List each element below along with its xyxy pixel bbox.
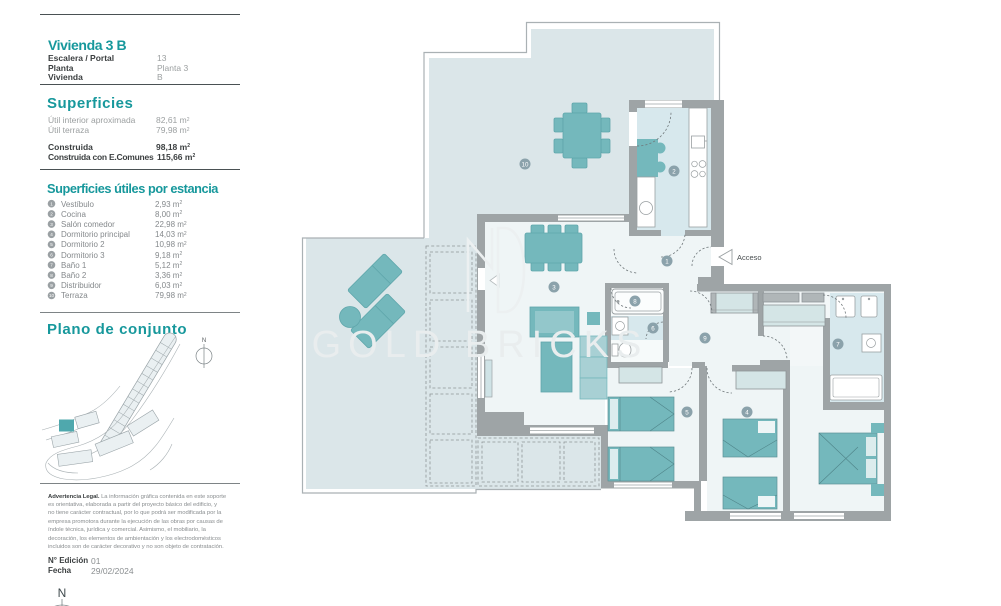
- svg-text:Acceso: Acceso: [737, 253, 762, 262]
- svg-text:N: N: [58, 586, 67, 600]
- svg-text:10: 10: [49, 293, 55, 298]
- svg-text:3: 3: [50, 222, 53, 227]
- svg-text:1: 1: [665, 258, 669, 265]
- svg-text:7: 7: [836, 341, 840, 348]
- svg-text:N: N: [202, 338, 206, 344]
- svg-text:7: 7: [50, 263, 53, 268]
- svg-text:8: 8: [50, 273, 53, 278]
- svg-text:3: 3: [552, 284, 556, 291]
- svg-text:GOLD BRICKS: GOLD BRICKS: [312, 324, 649, 366]
- svg-text:4: 4: [50, 232, 53, 237]
- svg-text:4: 4: [745, 409, 749, 416]
- svg-text:6: 6: [50, 252, 53, 257]
- svg-text:8: 8: [633, 298, 637, 305]
- svg-text:9: 9: [50, 283, 53, 288]
- svg-text:1: 1: [50, 201, 53, 206]
- svg-text:2: 2: [672, 168, 676, 175]
- svg-text:5: 5: [50, 242, 53, 247]
- svg-text:9: 9: [703, 335, 707, 342]
- svg-text:10: 10: [522, 161, 529, 168]
- svg-text:6: 6: [651, 325, 655, 332]
- svg-text:5: 5: [685, 409, 689, 416]
- svg-text:2: 2: [50, 212, 53, 217]
